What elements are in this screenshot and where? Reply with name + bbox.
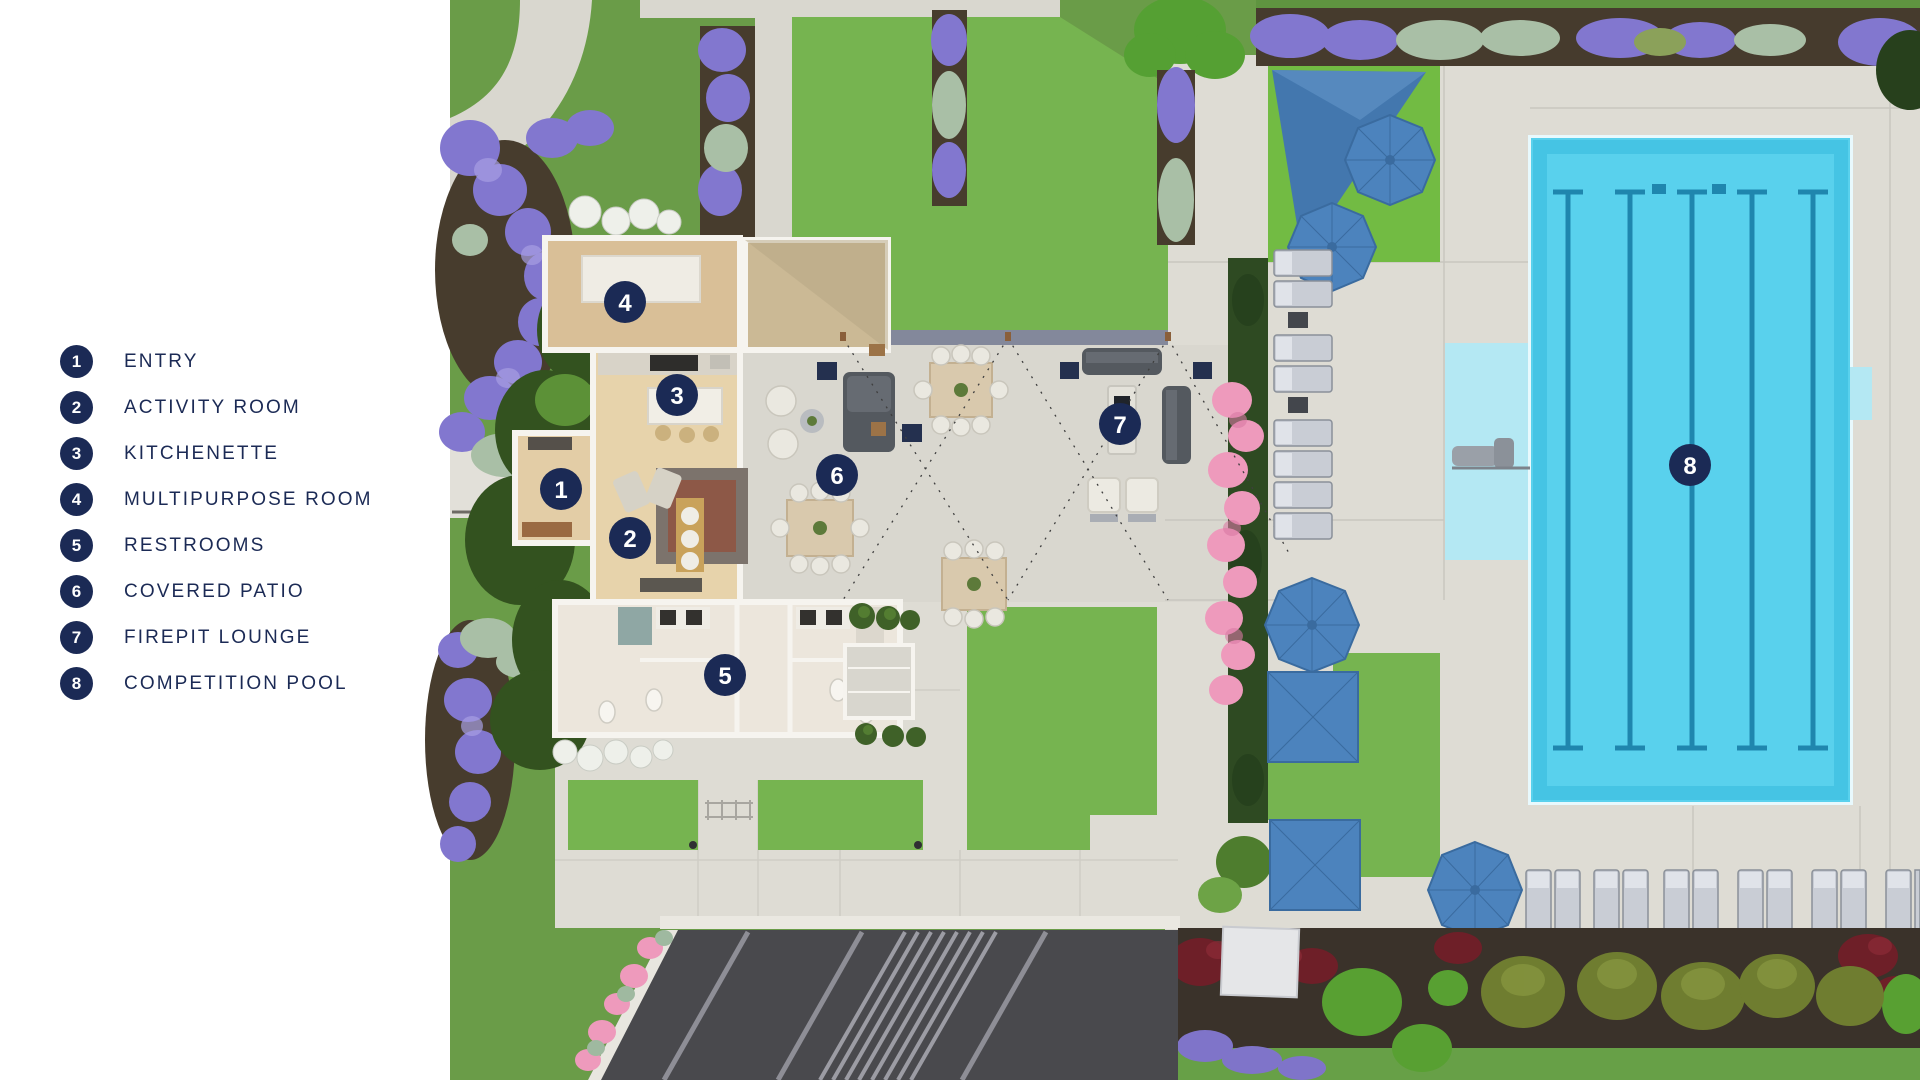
legend-item-firepit-lounge: 7 FIREPIT LOUNGE <box>60 621 373 654</box>
legend-number-badge: 1 <box>60 345 93 378</box>
legend-item-restrooms: 5 RESTROOMS <box>60 529 373 562</box>
legend-item-label: FIREPIT LOUNGE <box>124 627 311 649</box>
legend-item-label: MULTIPURPOSE ROOM <box>124 489 373 511</box>
marker-restrooms: 5 <box>704 654 746 696</box>
parking-lot <box>575 930 1178 1080</box>
landscaping-south <box>1170 927 1920 1080</box>
marker-kitchenette: 3 <box>656 374 698 416</box>
legend: 1 ENTRY 2 ACTIVITY ROOM 3 KITCHENETTE 4 … <box>60 345 373 713</box>
svg-text:8: 8 <box>1683 453 1696 480</box>
legend-item-covered-patio: 6 COVERED PATIO <box>60 575 373 608</box>
svg-text:1: 1 <box>554 477 567 504</box>
legend-item-entry: 1 ENTRY <box>60 345 373 378</box>
umbrella-icon <box>1268 672 1358 762</box>
umbrella-icon <box>1345 115 1435 205</box>
legend-item-kitchenette: 3 KITCHENETTE <box>60 437 373 470</box>
legend-item-label: COVERED PATIO <box>124 581 305 603</box>
legend-number-badge: 5 <box>60 529 93 562</box>
legend-item-activity-room: 2 ACTIVITY ROOM <box>60 391 373 424</box>
legend-item-label: ENTRY <box>124 351 199 373</box>
marker-firepit-lounge: 7 <box>1099 403 1141 445</box>
umbrella-icon <box>1270 820 1360 910</box>
svg-text:3: 3 <box>670 383 683 410</box>
legend-item-label: KITCHENETTE <box>124 443 279 465</box>
marker-covered-patio: 6 <box>816 454 858 496</box>
svg-text:4: 4 <box>618 290 632 317</box>
legend-item-label: RESTROOMS <box>124 535 265 557</box>
legend-number-badge: 8 <box>60 667 93 700</box>
svg-text:7: 7 <box>1113 412 1126 439</box>
umbrella-icon <box>1288 203 1376 291</box>
legend-number-badge: 2 <box>60 391 93 424</box>
svg-text:2: 2 <box>623 526 636 553</box>
marker-entry: 1 <box>540 468 582 510</box>
legend-item-label: ACTIVITY ROOM <box>124 397 301 419</box>
legend-number-badge: 3 <box>60 437 93 470</box>
site-plan-page: 1 2 3 4 5 6 7 8 1 ENTRY 2 ACTIVITY ROOM … <box>0 0 1920 1080</box>
marker-multipurpose-room: 4 <box>604 281 646 323</box>
legend-number-badge: 6 <box>60 575 93 608</box>
legend-number-badge: 7 <box>60 621 93 654</box>
marker-competition-pool: 8 <box>1669 444 1711 486</box>
legend-item-competition-pool: 8 COMPETITION POOL <box>60 667 373 700</box>
marker-activity-room: 2 <box>609 517 651 559</box>
svg-text:5: 5 <box>718 663 731 690</box>
umbrella-icon <box>1428 842 1522 938</box>
legend-item-multipurpose-room: 4 MULTIPURPOSE ROOM <box>60 483 373 516</box>
legend-item-label: COMPETITION POOL <box>124 673 348 695</box>
legend-number-badge: 4 <box>60 483 93 516</box>
svg-text:6: 6 <box>830 463 843 490</box>
umbrella-icon <box>1265 578 1359 672</box>
